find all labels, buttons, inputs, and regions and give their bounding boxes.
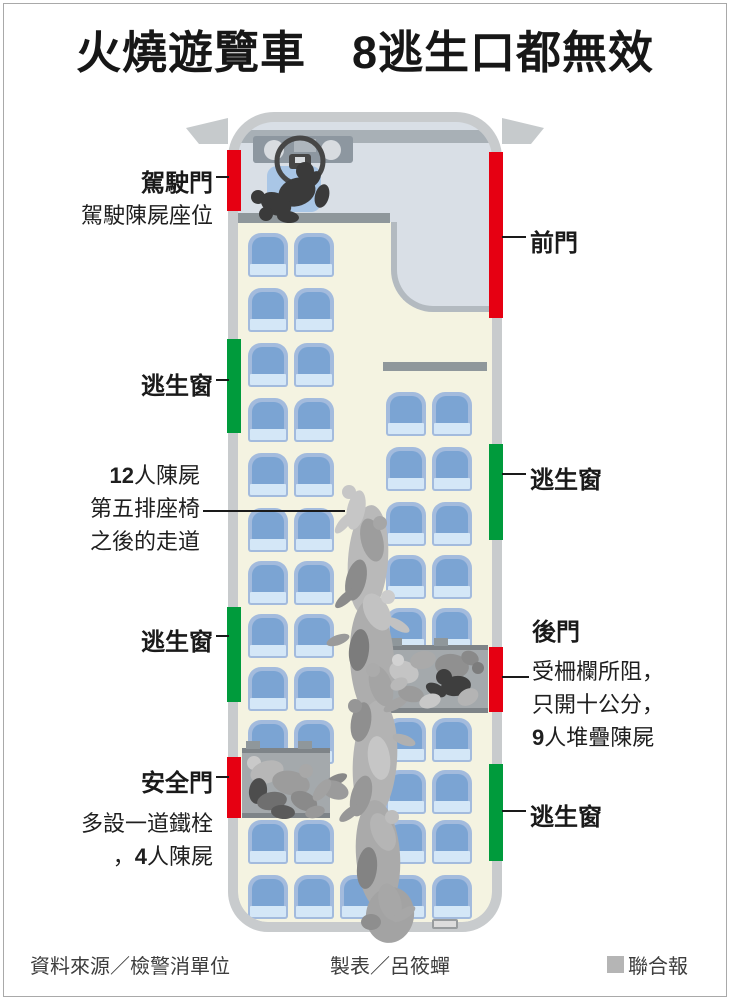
passenger-seat	[432, 718, 472, 762]
driver-door-marker	[227, 150, 241, 211]
brand-name: 聯合報	[628, 950, 688, 979]
passenger-seat	[432, 392, 472, 436]
escape-window-left-upper-marker	[227, 339, 241, 433]
callout-line	[502, 236, 526, 238]
callout-line	[216, 176, 229, 178]
brand-square-icon	[607, 956, 624, 973]
passenger-seat	[294, 875, 334, 919]
passenger-seat	[294, 508, 334, 552]
platform-tab	[434, 638, 448, 646]
safety-door-note: 多設一道鐵栓 ，4人陳屍	[81, 807, 213, 873]
passenger-seat	[386, 718, 426, 762]
passenger-seat	[432, 820, 472, 864]
passenger-seat	[248, 561, 288, 605]
passenger-seat	[386, 447, 426, 491]
passenger-seat	[248, 233, 288, 277]
passenger-seat	[294, 667, 334, 711]
passenger-seat	[386, 820, 426, 864]
driver-door-label: 駕駛門	[141, 163, 213, 198]
left-mirror-icon	[186, 118, 228, 144]
passenger-seat	[386, 392, 426, 436]
escape-window-left-lower-marker	[227, 607, 241, 702]
platform-tab	[388, 638, 402, 646]
rear-door-marker	[489, 647, 503, 712]
platform-tab	[246, 741, 260, 749]
safety-door-label: 安全門	[141, 763, 213, 798]
passenger-seat	[386, 555, 426, 599]
passenger-seat	[248, 614, 288, 658]
passenger-seat	[432, 770, 472, 814]
passenger-seat	[248, 667, 288, 711]
front-door-well	[391, 222, 492, 312]
passenger-seat	[294, 453, 334, 497]
passenger-seat	[248, 508, 288, 552]
passenger-seat	[294, 398, 334, 442]
driver-door-note: 駕駛陳屍座位	[81, 199, 213, 232]
passenger-seat	[340, 875, 380, 919]
rear-door-label: 後門	[532, 612, 580, 647]
callout-line	[216, 635, 229, 637]
front-door-railing	[383, 362, 487, 371]
footer-source: 資料來源／檢警消單位	[30, 950, 230, 979]
passenger-seat	[294, 233, 334, 277]
rear-door-platform	[384, 645, 488, 713]
front-door-marker	[489, 152, 503, 318]
callout-line	[502, 473, 526, 475]
escape-window-right-upper-label: 逃生窗	[530, 460, 602, 495]
rear-door-note: 受柵欄所阻， 只開十公分， 9人堆疊陳屍	[532, 655, 664, 754]
passenger-seat	[432, 875, 472, 919]
footer-brand: 聯合報	[607, 950, 688, 979]
passenger-seat	[248, 453, 288, 497]
escape-window-left-upper-label: 逃生窗	[141, 366, 213, 401]
callout-line	[502, 676, 529, 678]
platform-tab	[298, 741, 312, 749]
escape-window-right-lower-label: 逃生窗	[530, 797, 602, 832]
aisle-casualties-note: 12人陳屍 第五排座椅 之後的走道	[90, 459, 200, 558]
passenger-seat	[294, 561, 334, 605]
callout-line	[203, 510, 345, 512]
passenger-seat	[386, 875, 426, 919]
passenger-seat	[294, 820, 334, 864]
passenger-seat	[386, 502, 426, 546]
passenger-seat	[294, 614, 334, 658]
rear-step	[432, 919, 458, 929]
callout-line	[216, 776, 229, 778]
safety-door-marker	[227, 757, 241, 818]
passenger-seat	[248, 343, 288, 387]
escape-window-right-upper-marker	[489, 444, 503, 540]
page-title: 火燒遊覽車 8逃生口都無效	[0, 16, 730, 81]
escape-window-left-lower-label: 逃生窗	[141, 622, 213, 657]
passenger-seat	[432, 555, 472, 599]
windshield	[238, 130, 492, 143]
passenger-seat	[386, 770, 426, 814]
passenger-seat	[248, 820, 288, 864]
escape-window-right-lower-marker	[489, 764, 503, 861]
safety-door-platform	[242, 748, 330, 818]
driver-partition	[238, 213, 390, 223]
front-door-label: 前門	[530, 223, 578, 258]
passenger-seat	[248, 288, 288, 332]
passenger-seat	[432, 447, 472, 491]
passenger-seat	[248, 398, 288, 442]
right-mirror-icon	[502, 118, 544, 144]
passenger-seat	[294, 288, 334, 332]
passenger-seat	[248, 875, 288, 919]
passenger-seat	[432, 502, 472, 546]
bus-interior	[238, 122, 492, 922]
footer-credit: 製表／呂筱蟬	[330, 950, 450, 979]
infographic-page: 火燒遊覽車 8逃生口都無效	[0, 0, 730, 1000]
passenger-seat	[294, 343, 334, 387]
callout-line	[502, 810, 526, 812]
callout-line	[216, 379, 229, 381]
